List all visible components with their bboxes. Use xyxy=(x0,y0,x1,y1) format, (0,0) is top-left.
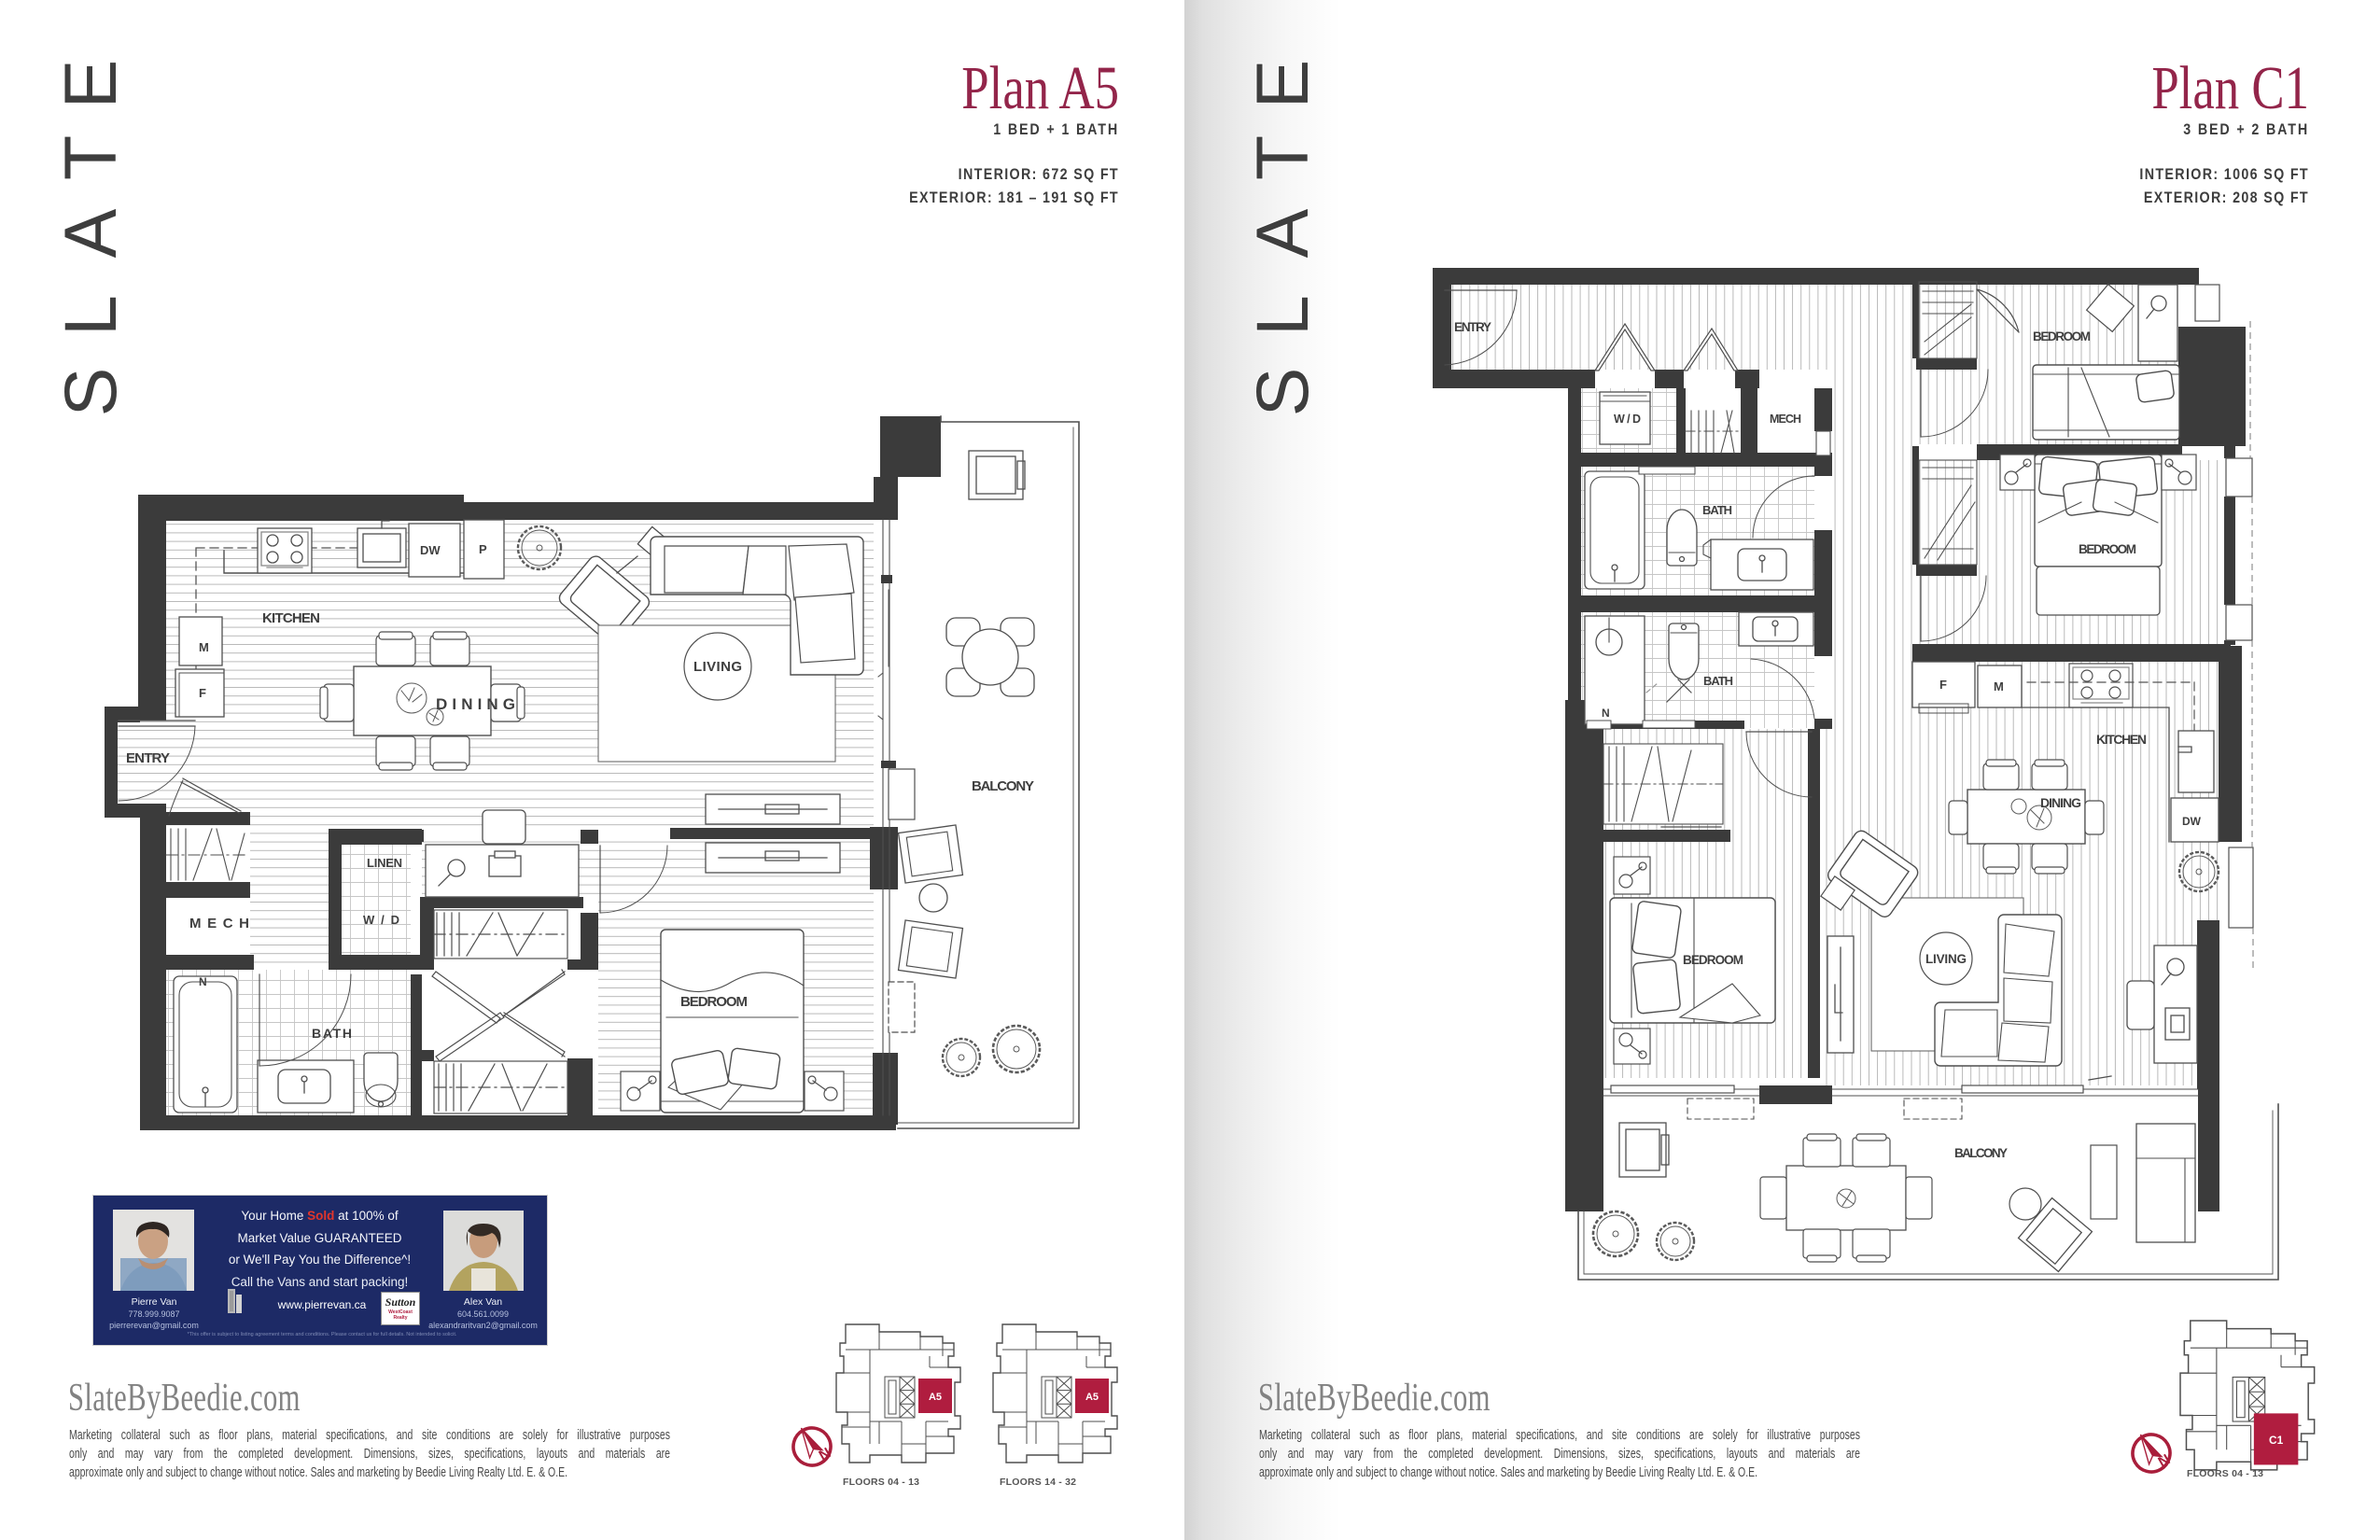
svg-text:BALCONY: BALCONY xyxy=(1954,1146,2008,1160)
svg-text:LIVING: LIVING xyxy=(693,659,742,675)
svg-text:N: N xyxy=(1602,707,1610,720)
svg-text:E: E xyxy=(1240,60,1323,109)
svg-text:C1: C1 xyxy=(2269,1434,2284,1447)
svg-text:L: L xyxy=(49,295,132,336)
svg-text:W/D: W/D xyxy=(363,913,399,927)
svg-text:W/D: W/D xyxy=(1614,413,1641,426)
svg-text:T: T xyxy=(1240,135,1323,180)
svg-text:L: L xyxy=(1240,295,1323,336)
svg-text:LINEN: LINEN xyxy=(367,856,402,870)
svg-text:DW: DW xyxy=(420,543,441,557)
svg-text:A: A xyxy=(49,208,132,258)
svg-text:MECH: MECH xyxy=(189,916,249,931)
svg-text:BEDROOM: BEDROOM xyxy=(1683,953,1743,967)
svg-text:BATH: BATH xyxy=(1702,503,1732,517)
svg-text:M: M xyxy=(199,640,209,654)
svg-text:DW: DW xyxy=(2182,815,2202,828)
svg-text:BEDROOM: BEDROOM xyxy=(2033,329,2091,343)
svg-text:S: S xyxy=(1240,368,1323,417)
svg-text:A: A xyxy=(1240,208,1323,258)
svg-text:MECH: MECH xyxy=(1770,413,1801,426)
svg-text:LIVING: LIVING xyxy=(1925,952,1967,966)
svg-text:ENTRY: ENTRY xyxy=(126,750,170,766)
svg-text:BEDROOM: BEDROOM xyxy=(680,994,748,1010)
svg-text:ENTRY: ENTRY xyxy=(1454,320,1491,334)
svg-text:BATH: BATH xyxy=(1703,674,1733,688)
svg-text:F: F xyxy=(1939,678,1947,692)
svg-text:P: P xyxy=(479,542,487,556)
svg-text:T: T xyxy=(49,135,132,180)
svg-text:BALCONY: BALCONY xyxy=(972,778,1034,794)
svg-text:A5: A5 xyxy=(929,1392,942,1403)
svg-text:E: E xyxy=(49,60,132,109)
svg-text:F: F xyxy=(199,686,206,700)
svg-text:A5: A5 xyxy=(1085,1392,1099,1403)
svg-text:M: M xyxy=(1994,679,2004,693)
svg-text:KITCHEN: KITCHEN xyxy=(2096,732,2147,747)
svg-text:BEDROOM: BEDROOM xyxy=(2079,542,2136,556)
svg-text:N: N xyxy=(199,975,207,988)
svg-text:S: S xyxy=(49,368,132,417)
svg-text:DINING: DINING xyxy=(2040,795,2081,810)
svg-text:KITCHEN: KITCHEN xyxy=(262,610,320,626)
